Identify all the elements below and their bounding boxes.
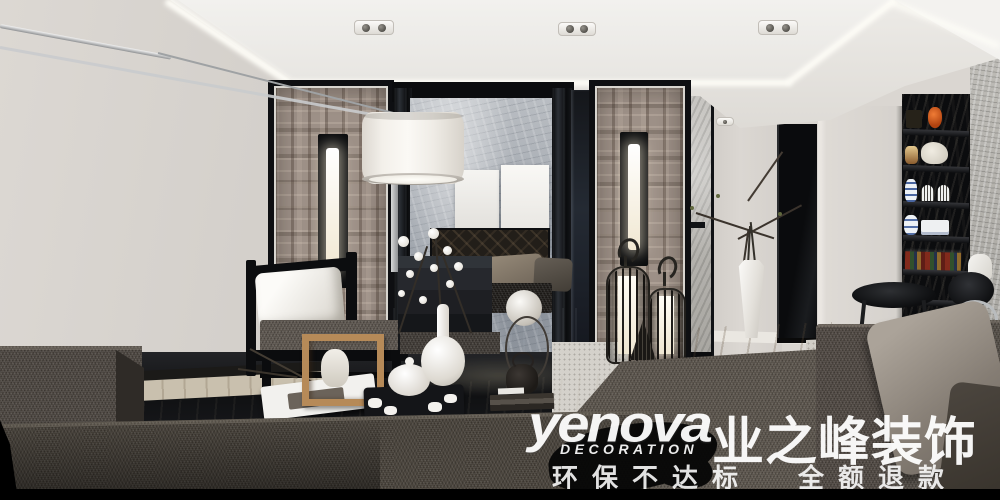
cotton-flower — [430, 264, 438, 272]
gourd-vase-body — [421, 336, 465, 386]
recessed-spotlight — [558, 22, 596, 36]
teacup — [428, 402, 442, 412]
sconce-tube-glow — [326, 148, 339, 270]
teacup — [384, 406, 397, 415]
cotton-flower — [419, 296, 427, 304]
cotton-flower — [414, 252, 423, 261]
leaf — [690, 206, 694, 210]
living-room-render: yenova DECORATION 业之峰装饰 环保不达标 全额退款 — [0, 0, 1000, 500]
shelf-porcelain-jar — [904, 215, 918, 235]
shelf-dark-box — [906, 110, 922, 128]
cotton-flower — [443, 246, 452, 255]
shelf-mesh-dome — [937, 185, 950, 201]
recessed-spotlight-small — [716, 117, 734, 126]
shelf-white-box — [921, 220, 949, 235]
teacup — [368, 398, 382, 408]
pendant-drum-lamp — [362, 112, 464, 184]
shelf-blue-white-vase — [905, 179, 917, 202]
shelf-mesh-dome — [921, 185, 934, 201]
shelf-sheep-figurine — [921, 142, 948, 164]
recessed-spotlight — [758, 20, 798, 35]
lantern-hook — [614, 235, 642, 266]
cotton-flower — [428, 228, 439, 239]
leaf — [716, 194, 720, 198]
cotton-flower — [454, 262, 463, 271]
teacup — [444, 394, 457, 403]
shelf-books — [905, 251, 961, 270]
cotton-flower — [446, 280, 454, 288]
shelf-orange-vase — [928, 107, 942, 128]
lantern-cage — [648, 288, 686, 362]
leaf — [778, 212, 782, 216]
cotton-flower — [398, 290, 405, 297]
white-card — [498, 388, 524, 395]
foreground-shadow — [0, 418, 380, 500]
drum-top-edge — [362, 112, 464, 120]
lantern-hook-stem — [663, 272, 666, 286]
kettle-handle — [512, 352, 534, 370]
cotton-flower — [406, 270, 414, 278]
teapot-knob — [405, 357, 414, 366]
arc-lamp-pole — [391, 176, 398, 272]
cotton-flower — [398, 236, 409, 247]
recessed-spotlight — [354, 20, 394, 35]
drum-inner-glow — [369, 175, 457, 184]
bottom-black-bar — [0, 489, 1000, 500]
shelf-cream-jar — [905, 146, 918, 164]
branch-arrangement — [668, 172, 808, 292]
lantern-bars — [650, 290, 684, 360]
sconce-tube-glow — [628, 144, 640, 250]
owl-sculpture — [321, 349, 349, 387]
watermark-brand-sub: DECORATION — [560, 441, 698, 457]
